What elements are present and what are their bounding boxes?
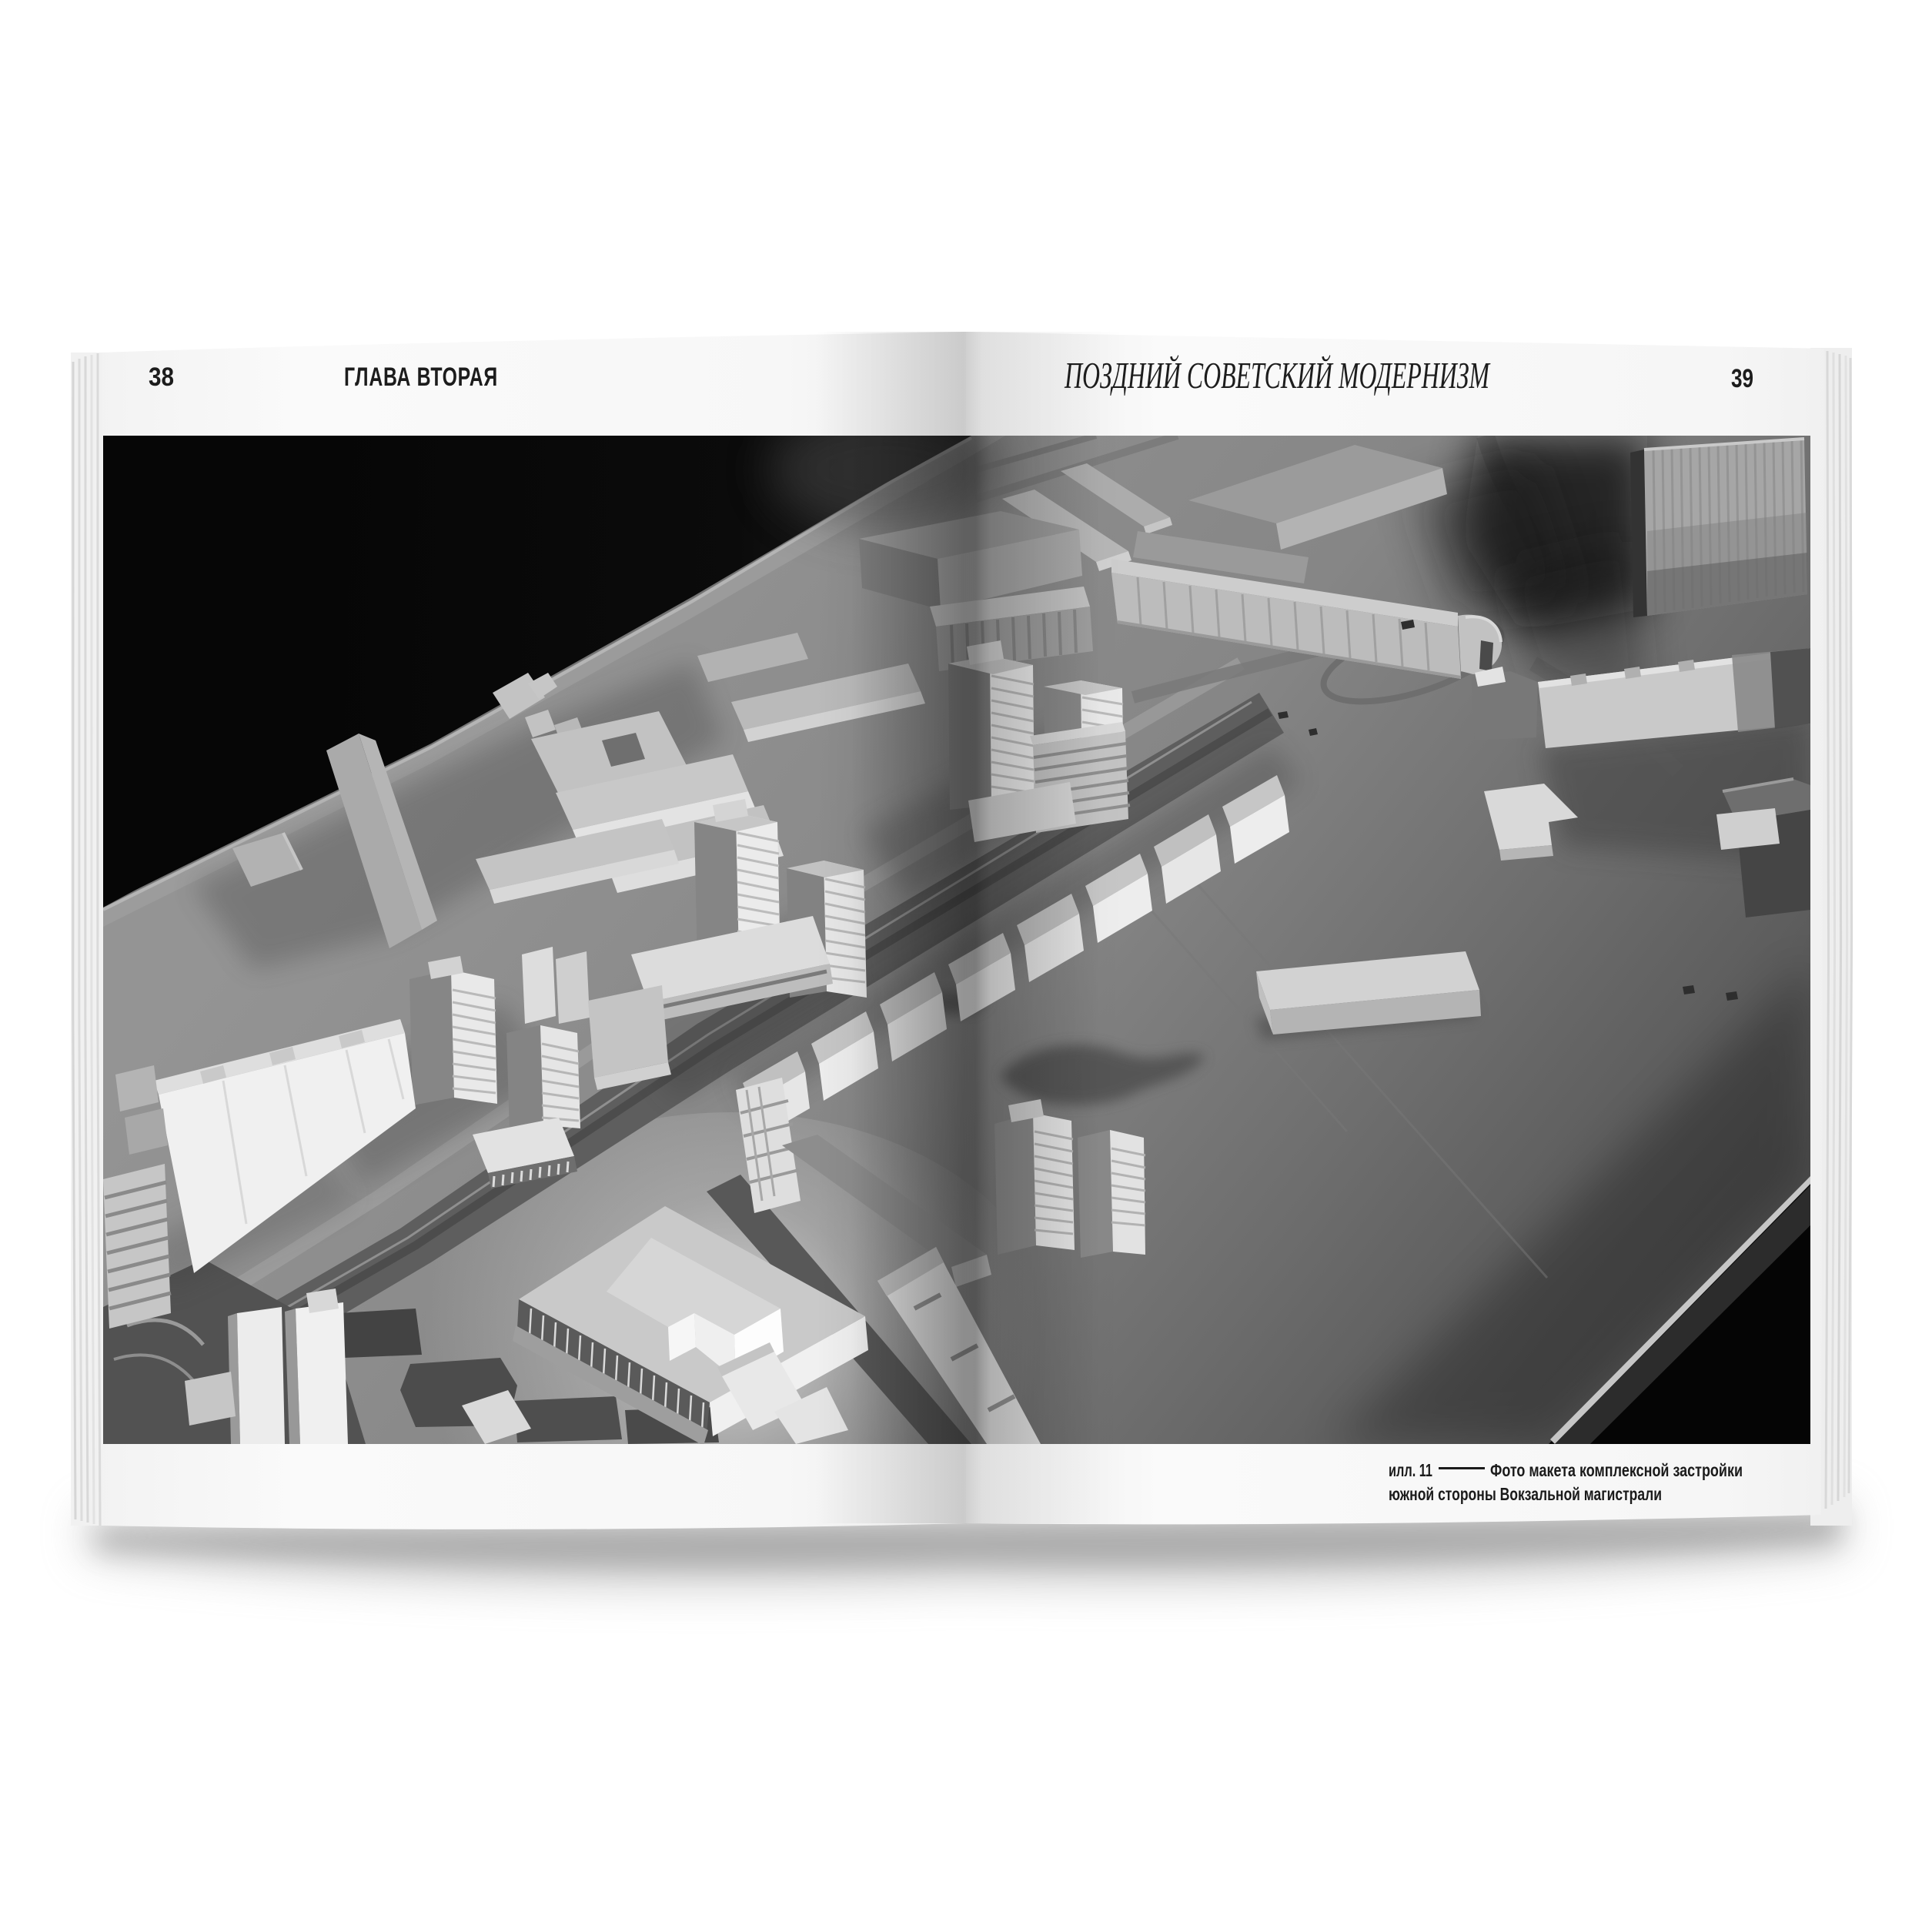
svg-text:38: 38 [149,363,174,392]
svg-text:ПОЗДНИЙ СОВЕТСКИЙ МОДЕРНИЗМ: ПОЗДНИЙ СОВЕТСКИЙ МОДЕРНИЗМ [1064,354,1491,396]
svg-text:ГЛАВА ВТОРАЯ: ГЛАВА ВТОРАЯ [344,363,498,392]
svg-text:илл. 11: илл. 11 [1389,1460,1432,1480]
svg-text:39: 39 [1731,364,1753,393]
svg-text:южной стороны Вокзальной магис: южной стороны Вокзальной магистрали [1389,1484,1662,1504]
svg-text:Фото макета комплексной застро: Фото макета комплексной застройки [1490,1460,1743,1480]
